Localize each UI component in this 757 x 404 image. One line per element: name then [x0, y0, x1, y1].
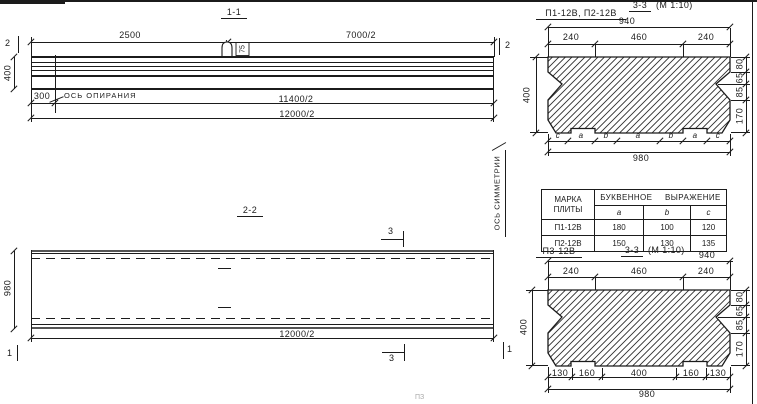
extension-line [31, 329, 32, 342]
dim-label-400: 400 [523, 87, 532, 103]
dim-line [548, 261, 733, 262]
extension-line [676, 368, 677, 380]
cut-mark-line [18, 36, 19, 53]
table-subheader-a: a [595, 206, 644, 220]
extension-line [548, 134, 549, 156]
dim-label-12000-half: 12000/2 [279, 330, 314, 339]
table-cell-b: 100 [644, 220, 691, 236]
dim-line [548, 141, 730, 142]
plan-bottom-edge [31, 327, 494, 329]
beam-layer-line [31, 62, 494, 63]
dim-label-85: 85 [736, 320, 745, 331]
frame-top-left-nub [0, 0, 65, 4]
section-3-3-top-title: 3-3 [629, 1, 651, 12]
dim-label-130: 130 [552, 369, 568, 378]
letter-dim-b: b [604, 132, 609, 140]
extension-line [493, 90, 494, 122]
extension-line [548, 28, 549, 57]
dim-label-65: 65 [736, 306, 745, 317]
letter-dim-a: a [693, 132, 698, 140]
dim-label-980: 980 [633, 154, 649, 163]
dim-label-130: 130 [710, 369, 726, 378]
extension-line [493, 329, 494, 342]
dim-line [31, 42, 494, 43]
dim-label-12000-half: 12000/2 [279, 110, 314, 119]
dim-label-240: 240 [698, 267, 714, 276]
dim-label-240: 240 [698, 33, 714, 42]
dim-label-460: 460 [631, 33, 647, 42]
table-cell-c: 120 [691, 220, 727, 236]
cross-section-bottom [547, 289, 731, 367]
center-mark [218, 307, 231, 308]
table-cell-a: 180 [595, 220, 644, 236]
extension-line [602, 368, 603, 380]
dim-label-2500: 2500 [119, 31, 141, 40]
plan-left-edge [31, 250, 32, 329]
extension-line [706, 368, 707, 380]
dim-line [31, 118, 494, 119]
frame-right-line [752, 0, 753, 404]
letter-dim-c: c [556, 132, 560, 140]
extension-line [530, 132, 548, 133]
extension-line [572, 368, 573, 380]
extension-line [730, 134, 731, 156]
dim-tick [528, 362, 535, 369]
letter-dim-b: b [669, 132, 674, 140]
beam-bottom-edge [31, 88, 494, 90]
dim-line [14, 57, 15, 89]
table-row: П1-12В 180 100 120 [542, 220, 727, 236]
extension-line [548, 262, 549, 290]
cut-marker-3-top: 3 [388, 227, 393, 236]
section-3-3-bottom-scale: (М 1:10) [648, 246, 685, 255]
dim-line [31, 103, 494, 104]
extension-line [548, 367, 549, 393]
dim-tick [490, 99, 497, 106]
plan-hidden-line [31, 318, 494, 319]
lifting-loop-icon: 75 [219, 40, 253, 57]
beam-end-line [31, 56, 32, 90]
plates-label: П1-12В, П2-12В [536, 9, 626, 20]
cut-mark-line [503, 342, 504, 359]
dim-label-85: 85 [736, 87, 745, 98]
support-axis-label: ОСЬ ОПИРАНИЯ [64, 92, 137, 100]
cut-mark-line [499, 38, 500, 55]
extension-line [731, 333, 750, 334]
dim-tick [490, 114, 497, 121]
extension-line [526, 290, 548, 291]
dim-label-170: 170 [736, 341, 745, 357]
table-header-mark: МАРКА ПЛИТЫ [542, 190, 595, 220]
dim-label-160: 160 [579, 369, 595, 378]
cross-section-top [547, 56, 731, 134]
letter-dim-a: a [636, 132, 641, 140]
plan-bottom-line [31, 324, 494, 325]
dim-label-980: 980 [4, 280, 13, 296]
letter-dim-a: a [579, 132, 584, 140]
extension-line [730, 28, 731, 57]
dim-tick [742, 362, 749, 369]
section-3-3-top-scale: (М 1:10) [656, 1, 693, 10]
dim-tick [532, 129, 539, 136]
drawing-canvas: 1-1 2500 7000/2 2 2 75 400 300 ОСЬ ОПИРА… [0, 0, 757, 404]
dim-line [548, 277, 730, 278]
cut-mark-line [17, 345, 18, 361]
dim-line [14, 251, 15, 329]
symmetry-axis-underline [505, 150, 506, 237]
extension-line [526, 365, 548, 366]
extension-line [730, 367, 731, 393]
dim-label-460: 460 [631, 267, 647, 276]
dim-label-400: 400 [631, 369, 647, 378]
table-cell-mark: П1-12В [542, 220, 595, 236]
dim-label-11400-half: 11400/2 [279, 95, 314, 104]
dim-label-7000-half: 7000/2 [346, 31, 376, 40]
dim-line [536, 57, 537, 133]
dim-label-940: 940 [619, 17, 635, 26]
cut-marker-1-right: 1 [507, 345, 512, 354]
plate-dimension-table: МАРКА ПЛИТЫ БУКВЕННОЕ ВЫРАЖЕНИЕ a b c П1… [541, 189, 727, 252]
beam-end-line [493, 56, 494, 90]
extension-line [31, 37, 32, 57]
dim-label-940: 940 [699, 251, 715, 260]
support-axis-line [55, 55, 56, 113]
cut-marker-1-left: 1 [7, 349, 12, 358]
beam-layer-line [31, 66, 494, 67]
table-subheader-b: b [644, 206, 691, 220]
plan-right-edge [493, 250, 494, 329]
dim-label-980: 980 [639, 390, 655, 399]
dim-line [548, 44, 730, 45]
letter-dim-c: c [716, 132, 720, 140]
cut-marker-2-right: 2 [505, 41, 510, 50]
cut-mark-line [404, 344, 405, 361]
cut-mark-line [381, 239, 404, 240]
loop-mark-label: 75 [239, 45, 246, 53]
plate-label-p3: П3-12В [536, 247, 582, 258]
dim-label-400: 400 [4, 65, 13, 81]
dim-line [31, 338, 494, 339]
extension-line [730, 262, 731, 290]
center-mark [218, 268, 231, 269]
dim-tick [490, 334, 497, 341]
section-3-3-bottom-title: 3-3 [621, 246, 643, 257]
dim-tick [10, 85, 17, 92]
dim-tick [10, 325, 17, 332]
dim-label-160: 160 [683, 369, 699, 378]
beam-top-edge [31, 56, 494, 58]
section-2-2-title: 2-2 [237, 206, 263, 217]
plan-top-edge [31, 250, 494, 252]
dim-line [532, 290, 533, 366]
dim-label-240: 240 [563, 33, 579, 42]
cut-mark-line [403, 231, 404, 247]
extension-line [731, 100, 750, 101]
extension-line [31, 90, 32, 122]
cut-marker-2-left: 2 [5, 39, 10, 48]
cut-marker-3-bottom: 3 [389, 354, 394, 363]
table-subheader-c: c [691, 206, 727, 220]
plan-hidden-line [31, 258, 494, 259]
dim-label-400: 400 [520, 319, 529, 335]
extension-line [494, 37, 495, 57]
dim-line [548, 27, 730, 28]
symmetry-axis-label: ОСЬ СИММЕТРИИ [493, 156, 501, 231]
table-header-expression: БУКВЕННОЕ ВЫРАЖЕНИЕ [595, 190, 727, 206]
extension-line [530, 57, 548, 58]
section-1-1-title: 1-1 [221, 8, 247, 19]
dim-label-300: 300 [34, 92, 50, 101]
dim-label-80: 80 [736, 292, 745, 303]
beam-layer-line [31, 70, 494, 71]
dim-label-170: 170 [736, 108, 745, 124]
beam-layer-line [31, 75, 494, 77]
plan-top-line [31, 253, 494, 254]
dim-label-65: 65 [736, 73, 745, 84]
scan-artifact-text: ПЗ [415, 394, 424, 401]
dim-tick [742, 129, 749, 136]
dim-label-240: 240 [563, 267, 579, 276]
dim-label-80: 80 [736, 59, 745, 70]
